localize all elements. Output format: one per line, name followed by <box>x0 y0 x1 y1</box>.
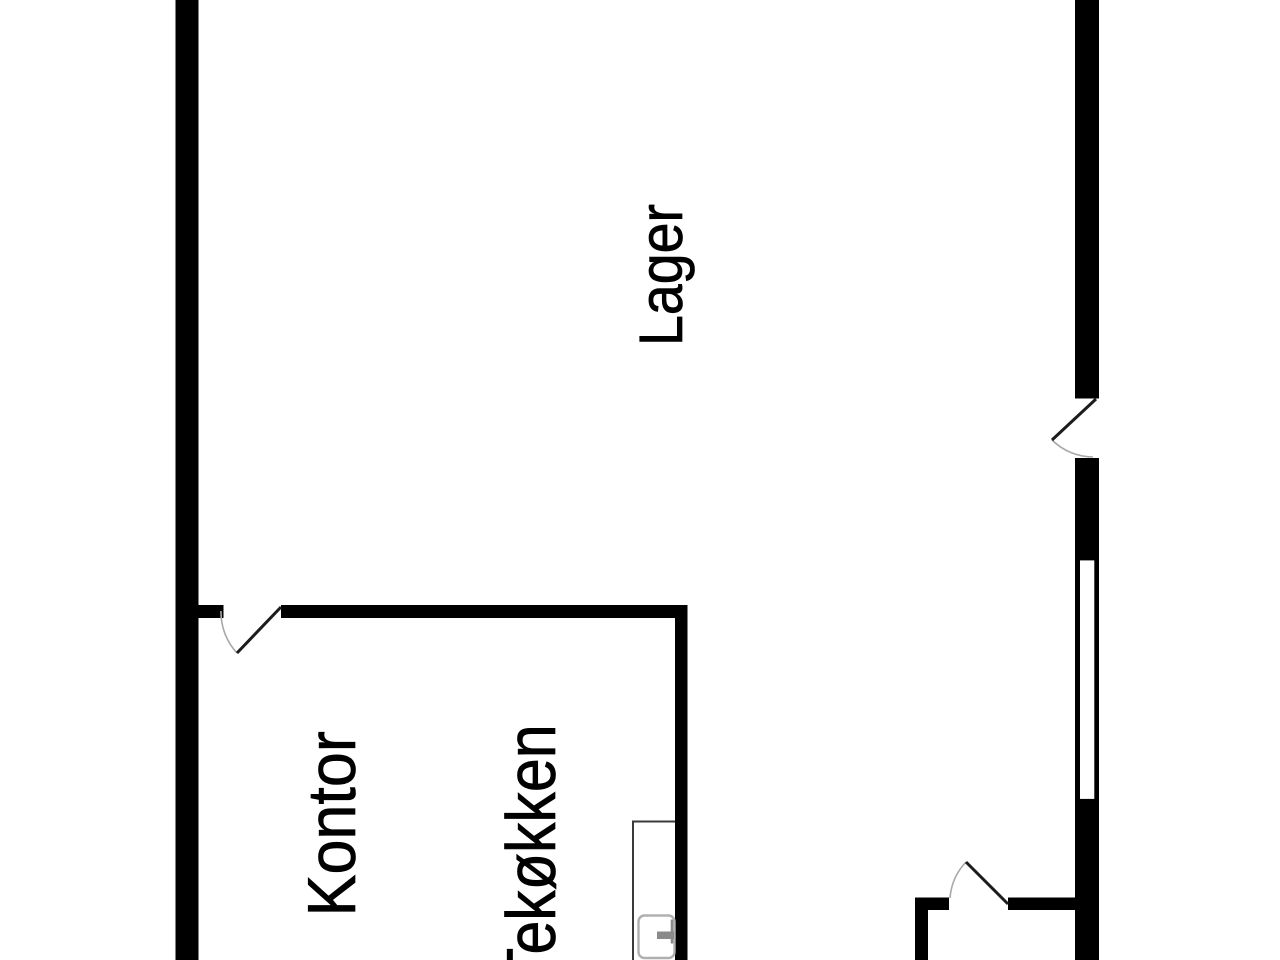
svg-text:Kontor: Kontor <box>294 731 370 916</box>
svg-text:Tekøkken: Tekøkken <box>492 724 570 960</box>
svg-text:Lager: Lager <box>628 204 696 346</box>
